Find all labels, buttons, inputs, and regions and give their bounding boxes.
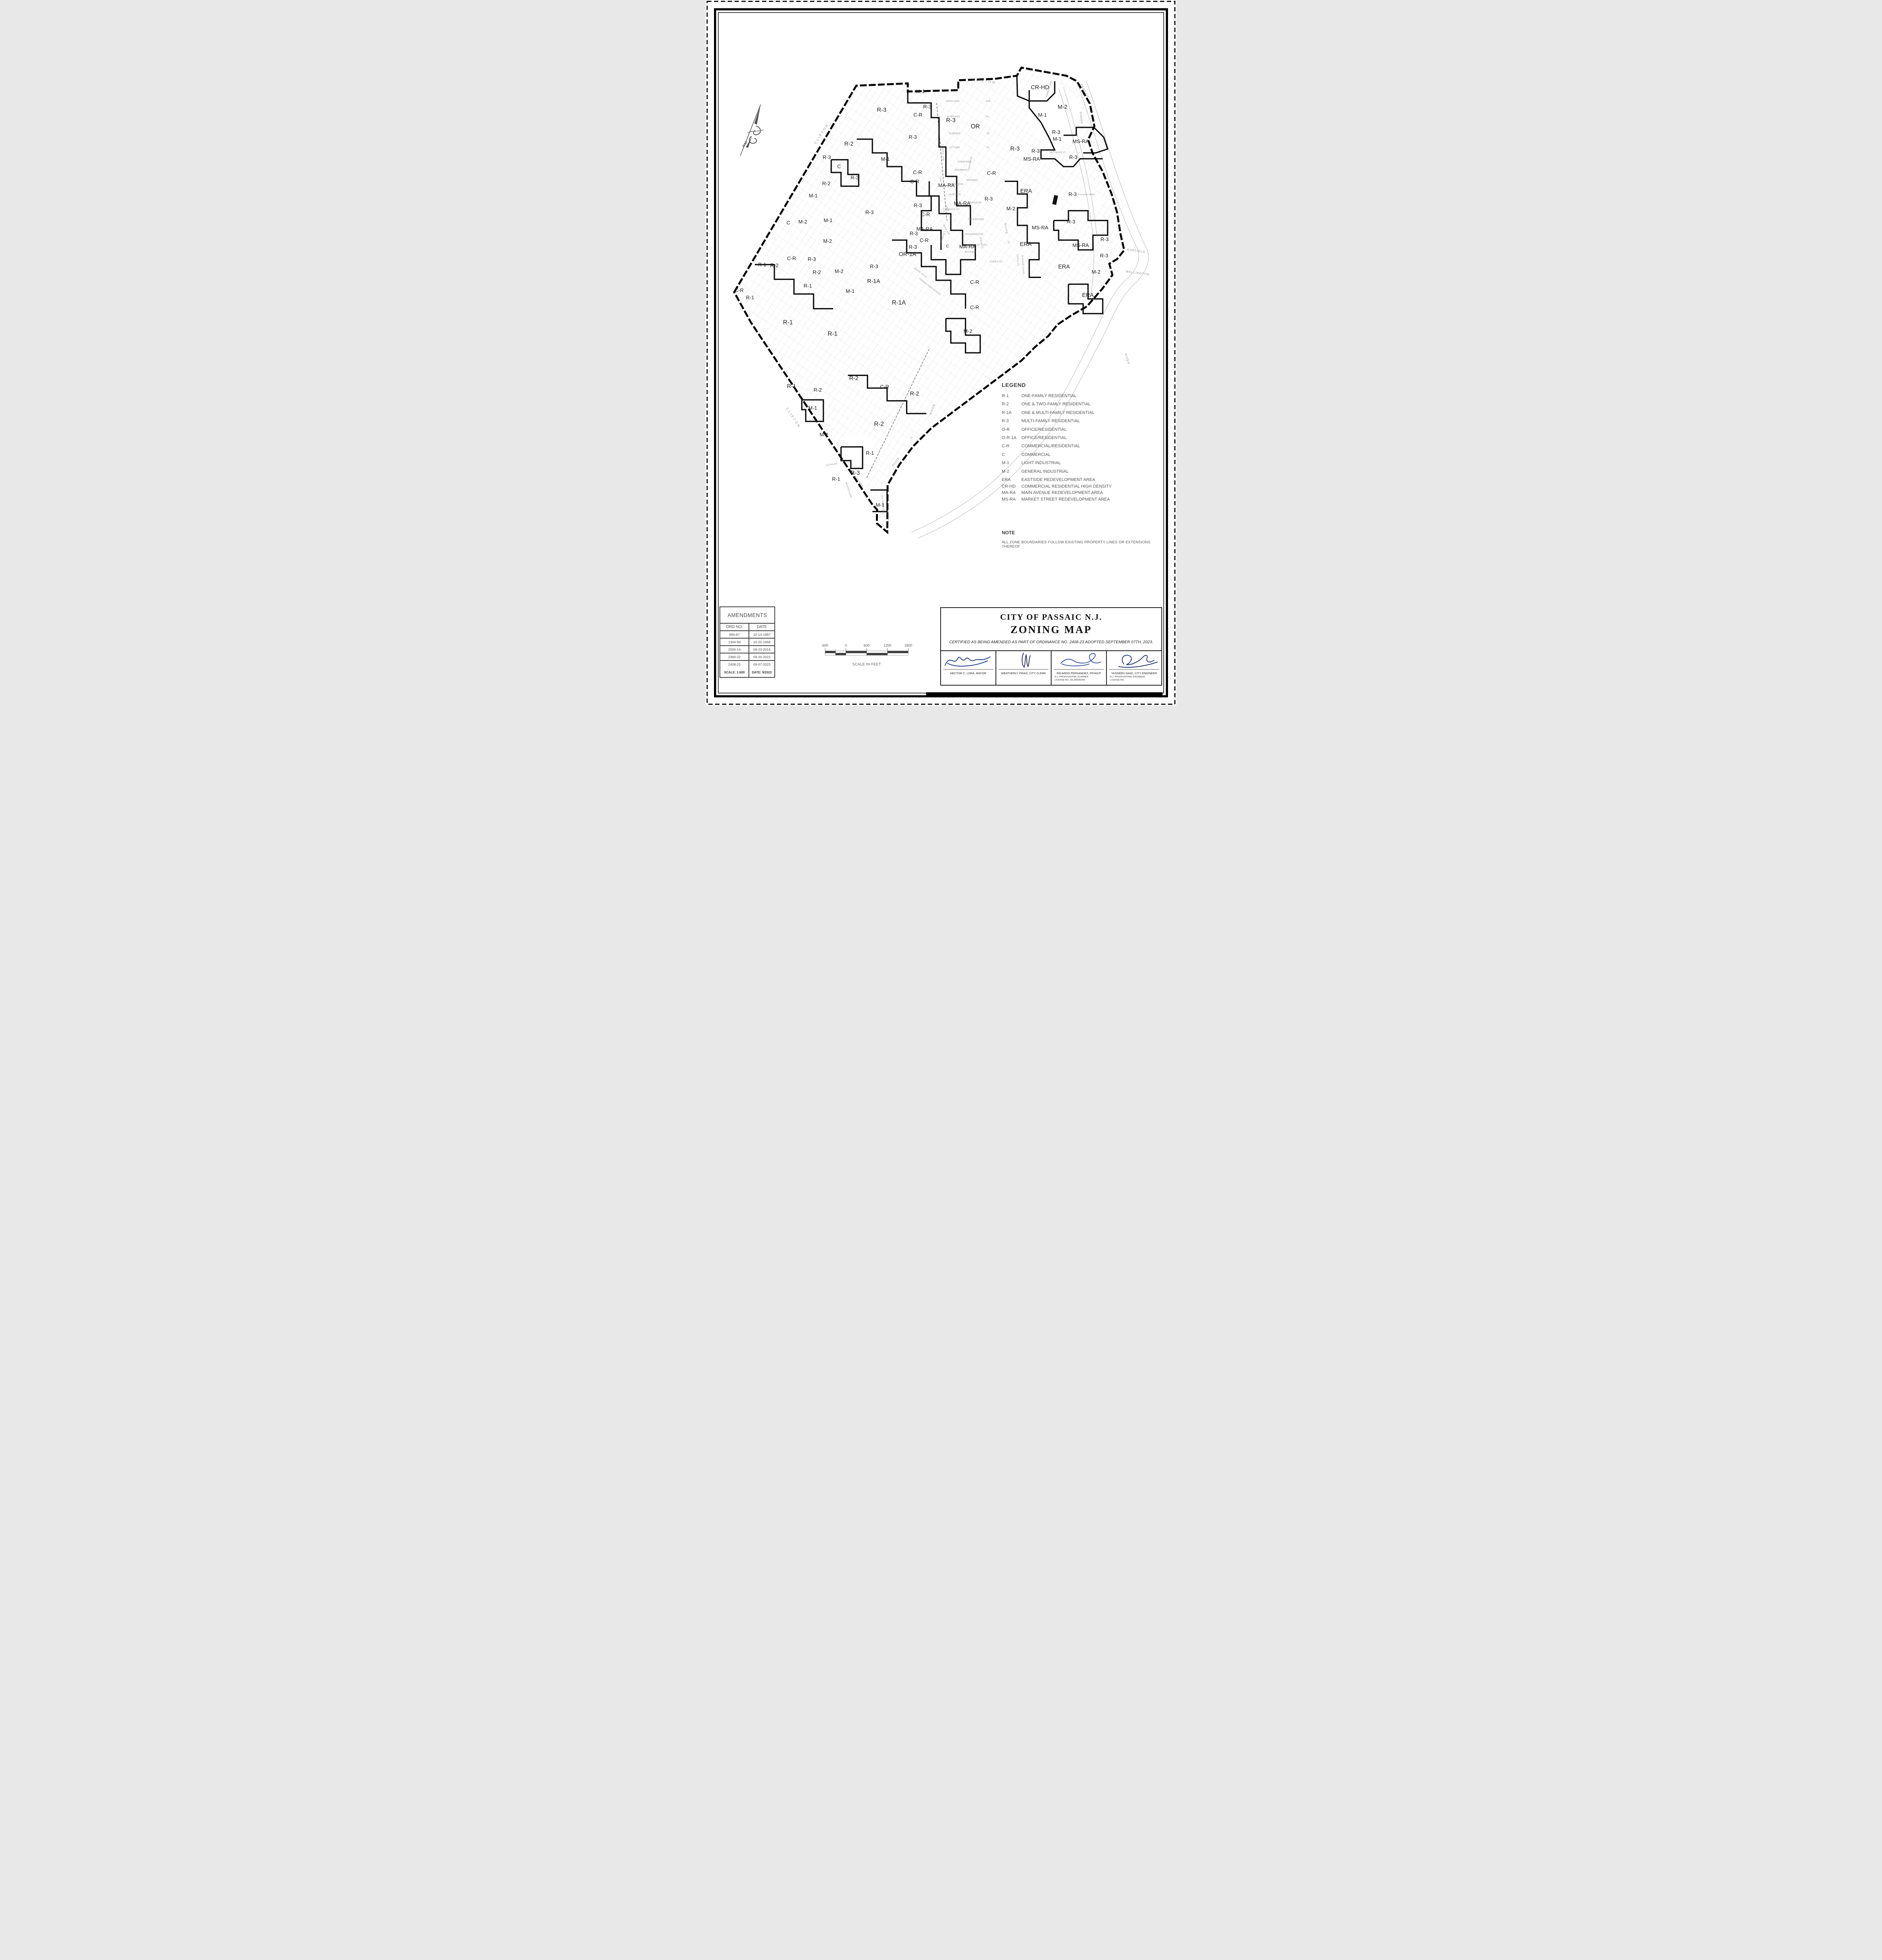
- note: NOTE ALL ZONE BOUNDARIES FOLLOW EXISTING…: [1002, 530, 1163, 549]
- street-label: GLENSIDE: [826, 463, 837, 466]
- zone-label: M-1: [846, 288, 854, 294]
- legend-item-code: O-R-1A: [1002, 436, 1021, 440]
- zone-label: C-R: [970, 305, 979, 310]
- zone-label: R-3: [870, 263, 878, 269]
- zone-label: MS-RA: [1072, 242, 1089, 248]
- zone-label: C-R: [987, 170, 996, 176]
- scale-bar: 600060012001800SCALE IN FEET: [822, 644, 912, 666]
- signatory-credential: N.J. PROFESSIONAL PLANNER: [1052, 676, 1106, 678]
- amendments-col-ord: ORD NO.: [720, 624, 749, 630]
- legend-item: R-2ONE & TWO-FAMLY RESIDENTIAL: [1002, 402, 1159, 407]
- title-block-header: CITY OF PASSAIC N.J. ZONING MAP CERTIFIE…: [940, 607, 1162, 651]
- signature-stroke: [1052, 651, 1106, 669]
- signature-rule: [1109, 669, 1159, 670]
- signatory-credential: N.J. PROFESSIONAL ENGINEER: [1107, 676, 1161, 678]
- amendment-date: 09-23-2014: [749, 646, 774, 653]
- legend-item-code: C: [1002, 452, 1021, 457]
- zone-label: M-1: [809, 192, 817, 198]
- zone-label: C-R: [735, 287, 744, 293]
- street-label: PASSAIC: [887, 511, 890, 524]
- zone-label: C-R: [913, 169, 922, 175]
- signature-cell: WEATHERLY FRIAS, CITY CLERK: [996, 651, 1052, 685]
- note-title: NOTE: [1002, 530, 1163, 535]
- zone-label: R-1: [866, 450, 874, 456]
- street-label: MONROE: [966, 179, 978, 181]
- zone-label: MA-RA: [938, 182, 955, 188]
- zone-label: M-1: [808, 405, 817, 411]
- zone-label: CR-HD: [1031, 85, 1049, 91]
- zone-label: R-3: [1067, 219, 1075, 225]
- legend-item-desc: COMMERCIAL: [1021, 452, 1159, 457]
- legend-item: M-1LIGHT INDUSTRIAL: [1002, 461, 1159, 465]
- signatory-name: YASSEEN SAAD, CITY ENGINEER: [1107, 671, 1161, 675]
- zone-label: R-1: [758, 261, 767, 267]
- legend-item-desc: ONE-FAMILY RESIDENTIAL: [1021, 394, 1159, 398]
- legend-item: O-R-1AOFFICE/RESIDENTIAL: [1002, 436, 1159, 440]
- amendment-date: 10-20-1994: [749, 639, 774, 645]
- amendment-ord: 2360-22: [720, 653, 749, 660]
- legend-item: R-3MULTI-FAMILY RESIDENTIAL: [1002, 419, 1159, 423]
- zone-label: C: [946, 244, 949, 249]
- zone-label: C-R: [914, 112, 923, 118]
- zone-label: R-1A: [867, 278, 880, 285]
- legend-item-code: R-1: [1002, 394, 1021, 398]
- zone-label: R-3: [1100, 252, 1108, 258]
- legend-title: LEGEND: [1002, 382, 1159, 388]
- amendment-ord: 2000-14: [720, 646, 749, 653]
- city-title: CITY OF PASSAIC N.J.: [941, 612, 1161, 622]
- zone-label: M-1: [916, 89, 925, 94]
- legend-item-code: CR-HD: [1002, 484, 1021, 489]
- signature-rule: [943, 669, 993, 670]
- legend-item-desc: LIGHT INDUSTRIAL: [1021, 461, 1159, 465]
- street-label: PULASKI PARK: [1078, 194, 1095, 196]
- note-text: ALL ZONE BOUNDARIES FOLLOW EXISTING PROP…: [1002, 540, 1163, 549]
- street-label: PL.: [986, 116, 990, 118]
- legend-item-code: O-R: [1002, 427, 1021, 432]
- zone-label: M-1: [1053, 136, 1061, 142]
- zone-label: R-3: [1101, 236, 1109, 242]
- amendment-row: 2408-2309-07-2023: [720, 661, 774, 668]
- legend-item: O-ROFFICE/RESIDENTIAL: [1002, 427, 1159, 432]
- zone-label: M-1: [820, 432, 828, 437]
- legend: LEGEND R-1ONE-FAMILY RESIDENTIALR-2ONE &…: [1002, 382, 1159, 503]
- zone-label: MA-RA: [916, 226, 933, 232]
- legend-item: CR-HDCOMMERCIAL RESIDENTIAL HIGH DENSITY: [1002, 484, 1159, 489]
- zone-label: OR: [971, 123, 980, 130]
- legend-item-desc: MAIN AVENUE REDEVELOPMENT AREA: [1021, 490, 1159, 495]
- zone-label: R-2: [844, 141, 853, 147]
- legend-item-code: ERA: [1002, 477, 1021, 482]
- street-label: RIVER: [1124, 353, 1130, 365]
- street-label: ERIE: [939, 176, 941, 182]
- amendment-row: 2360-2209-20-2022: [720, 653, 774, 661]
- zone-label: MA-RA: [954, 200, 970, 206]
- zone-label: M-2: [963, 328, 972, 334]
- zone-label: M-1: [1038, 112, 1047, 118]
- street-label: SHERMAN: [954, 169, 968, 172]
- signatory-name: RICARDO FERNANDEZ, PP/AICP: [1052, 671, 1106, 675]
- signature-rule: [999, 669, 1048, 670]
- legend-item-desc: ONE & TWO-FAMLY RESIDENTIAL: [1021, 402, 1159, 407]
- legend-item-desc: MARKET STREET REDEVELOPMENT AREA: [1021, 497, 1159, 502]
- legend-item-code: MA-RA: [1002, 490, 1021, 495]
- north-arrow: MAP: [740, 105, 764, 156]
- legend-item-code: R-1A: [1002, 410, 1021, 415]
- map-scale: SCALE: 1:600: [720, 668, 749, 677]
- legend-item-code: R-3: [1002, 419, 1021, 423]
- signature-cell: YASSEEN SAAD, CITY ENGINEERN.J. PROFESSI…: [1107, 651, 1161, 685]
- zone-label: R-3: [946, 117, 956, 123]
- zone-label: R-3: [1069, 154, 1077, 160]
- zone-label: C-R: [910, 179, 919, 185]
- street-label: ST.: [986, 147, 990, 149]
- zone-label: C-R: [787, 255, 796, 261]
- amendment-row: 990-8710-13-1987: [720, 631, 774, 639]
- certification-text: CERTIFIED AS BEING AMENDED AS PART OF OR…: [941, 640, 1161, 644]
- zone-label: M-1: [881, 156, 890, 162]
- zone-label: R-3: [823, 154, 831, 160]
- scale-bar-label: SCALE IN FEET: [852, 662, 881, 666]
- scale-bar-tick: 600: [822, 644, 828, 648]
- amendment-ord: 1304-94: [720, 639, 749, 645]
- amendment-date: 09-07-2023: [749, 661, 774, 668]
- signature-cell: HECTOR C. LORA, MAYOR: [941, 651, 996, 685]
- zone-label: C: [787, 220, 790, 225]
- zone-label: M-2: [823, 238, 832, 244]
- legend-item-code: R-2: [1002, 402, 1021, 407]
- legend-item-code: M-1: [1002, 461, 1021, 465]
- zone-label: M-2: [835, 269, 843, 274]
- street-label: PASSAIC: [965, 251, 976, 254]
- zone-label: R-1: [804, 283, 812, 289]
- zone-label: R-1A: [892, 299, 906, 306]
- zone-label: ERA: [1058, 264, 1070, 270]
- zone-label: MA-RA: [959, 243, 976, 249]
- zone-label: MS-RA: [1032, 225, 1048, 230]
- amendment-date: 09-20-2022: [749, 653, 774, 660]
- legend-item: MS-RAMARKET STREET REDEVELOPMENT AREA: [1002, 497, 1159, 502]
- legend-item: CCOMMERCIAL: [1002, 452, 1159, 457]
- signature-grid: HECTOR C. LORA, MAYORWEATHERLY FRIAS, CI…: [940, 651, 1162, 686]
- street-label: WASHINGTON: [965, 234, 983, 236]
- zone-label: R-3: [910, 230, 918, 236]
- legend-item-desc: GENERAL INDUSTRIAL: [1021, 469, 1159, 474]
- zone-label: R-1: [787, 383, 796, 390]
- zone-label: R-3: [851, 175, 859, 181]
- street-label: JACKSON: [948, 194, 961, 196]
- zone-label: OR-1A: [899, 251, 916, 258]
- amendments-title: AMENDMENTS: [720, 607, 774, 624]
- zone-label: R-2: [874, 421, 884, 428]
- street-label: AVE.: [986, 100, 991, 103]
- legend-item: MA-RAMAIN AVENUE REDEVELOPMENT AREA: [1002, 490, 1159, 495]
- amendments-footer-row: SCALE: 1:600 DATE: 9/2023: [720, 668, 774, 677]
- amendments-col-date: DATE: [749, 624, 774, 630]
- amendments-header-row: ORD NO. DATE: [720, 624, 774, 631]
- signature-rule: [1054, 669, 1104, 670]
- zone-label: R-3: [1068, 191, 1077, 197]
- street-label: R.R.: [942, 208, 945, 213]
- zone-label: C: [837, 163, 841, 169]
- legend-item-desc: OFFICE/RESIDENTIAL: [1021, 436, 1159, 440]
- zone-label: R-3: [909, 134, 917, 140]
- north-arrow-scroll: [754, 126, 761, 134]
- zone-label: R-2: [813, 269, 821, 275]
- legend-item: C-RCOMMERCIAL/RESIDENTIAL: [1002, 444, 1159, 448]
- zone-label: R-2: [910, 391, 919, 397]
- legend-items: R-1ONE-FAMILY RESIDENTIALR-2ONE & TWO-FA…: [1002, 394, 1159, 502]
- zone-label: R-3: [909, 244, 917, 250]
- street-label: HIGHLAND: [946, 100, 959, 103]
- signature-cell: RICARDO FERNANDEZ, PP/AICPN.J. PROFESSIO…: [1052, 651, 1107, 685]
- zone-label: R-2: [822, 181, 830, 187]
- zone-label: R-3: [877, 107, 887, 113]
- amendment-date: 10-13-1987: [749, 631, 774, 638]
- zone-label: C-R: [970, 279, 979, 285]
- legend-item-desc: ONE & MULTI-FAMILY RESIDENTIAL: [1021, 410, 1159, 415]
- zone-label: R-1: [746, 294, 754, 300]
- zone-label: ERA: [1020, 241, 1032, 248]
- scale-bar-tick: 1200: [883, 644, 891, 648]
- north-arrow-needle: [754, 105, 761, 125]
- zone-label: C-R: [919, 237, 928, 243]
- zone-label: C-R: [880, 384, 889, 390]
- street-label: MADISON: [969, 202, 982, 204]
- legend-item: R-1AONE & MULTI-FAMILY RESIDENTIAL: [1002, 410, 1159, 415]
- scale-bar-tick: 1800: [904, 644, 912, 648]
- signature-stroke: [941, 651, 995, 669]
- zone-label: MS-RA: [1072, 138, 1089, 144]
- signatory-credential: LICENSE NO. 33LJ00606200: [1052, 679, 1106, 681]
- title-block: CITY OF PASSAIC N.J. ZONING MAP CERTIFIE…: [940, 607, 1162, 693]
- signatory-name: HECTOR C. LORA, MAYOR: [941, 671, 995, 675]
- legend-item-desc: EASTSIDE REDEVELOPMENT AREA: [1021, 477, 1159, 482]
- amendment-row: 2000-1409-23-2014: [720, 646, 774, 653]
- legend-item: R-1ONE-FAMILY RESIDENTIAL: [1002, 394, 1159, 398]
- street-label: GARFIELD: [1127, 248, 1146, 254]
- map-date: DATE: 9/2023: [749, 668, 774, 677]
- street-label: 21: [1007, 241, 1010, 244]
- zone-label: M-2: [1058, 104, 1068, 111]
- zone-label: M-1: [824, 218, 832, 223]
- signature-stroke: [996, 651, 1051, 669]
- legend-item-desc: MULTI-FAMILY RESIDENTIAL: [1021, 419, 1159, 423]
- street-label: SUMMER: [949, 133, 961, 135]
- zone-label: M-1: [876, 502, 885, 508]
- legend-item-desc: COMMERCIAL/RESIDENTIAL: [1021, 444, 1159, 448]
- street-label: MATTIMORE ST.: [1050, 152, 1066, 154]
- zone-label: M-2: [798, 219, 807, 225]
- zone-label: R-3: [1010, 145, 1020, 152]
- zone-label: R-3: [808, 256, 816, 262]
- title-block-bottom-bar: [926, 692, 1163, 697]
- zone-label: R-2: [814, 387, 822, 393]
- street-label: HUGHES LAKE: [845, 482, 852, 498]
- zone-label: R-3: [851, 470, 860, 476]
- zone-label: ERA: [1082, 292, 1094, 299]
- zone-label: R-1: [828, 330, 837, 337]
- legend-item-code: M-2: [1002, 469, 1021, 474]
- street-label: CLIFTON: [785, 407, 801, 429]
- zone-label: R-3: [985, 196, 993, 201]
- page-title: ZONING MAP: [941, 624, 1161, 636]
- zone-label: R-2: [849, 375, 858, 381]
- map-sheet: CLIFTONCLIFTONCLIFTONGARFIELDWALLINGTONP…: [706, 0, 1176, 706]
- amendment-ord: 990-87: [720, 631, 749, 638]
- zone-label: R-3: [914, 203, 922, 209]
- legend-item-desc: COMMERCIAL RESIDENTIAL HIGH DENSITY: [1021, 484, 1159, 489]
- signatory-credential: LICENSE NO.: [1107, 679, 1161, 681]
- zoning-map-canvas: CLIFTONCLIFTONCLIFTONGARFIELDWALLINGTONP…: [706, 0, 1176, 706]
- amendments-table: AMENDMENTS ORD NO. DATE 990-8710-13-1987…: [719, 606, 775, 678]
- zone-label: M-2: [1006, 206, 1015, 212]
- zone-label: R-3: [923, 103, 932, 109]
- legend-item: ERAEASTSIDE REDEVELOPMENT AREA: [1002, 477, 1159, 482]
- signatory-name: WEATHERLY FRIAS, CITY CLERK: [996, 671, 1051, 675]
- amendment-row: 1304-9410-20-1994: [720, 639, 774, 646]
- scale-bar-tick: 600: [864, 644, 870, 648]
- legend-item-desc: OFFICE/RESIDENTIAL: [1021, 427, 1159, 432]
- street-label: ST.: [987, 133, 991, 135]
- zone-label: R-3: [865, 209, 874, 215]
- zone-label: C-R: [921, 212, 930, 218]
- zone-label: R-1: [783, 319, 793, 326]
- street-label: ASPEN ST.: [990, 261, 1003, 263]
- signature-stroke: [1107, 651, 1161, 669]
- zone-label: R-1: [832, 476, 840, 482]
- zone-label: ERA: [1020, 188, 1032, 194]
- street-label: WALLINGTON: [1125, 270, 1150, 276]
- amendment-ord: 2408-23: [720, 661, 749, 668]
- zone-label: R-3: [1052, 129, 1060, 135]
- street-label: AUTUMN: [949, 147, 960, 149]
- legend-item-code: MS-RA: [1002, 497, 1021, 502]
- zone-label: M-2: [1092, 269, 1100, 275]
- zone-label: MS-RA: [1023, 156, 1040, 162]
- scale-bar-tick: 0: [845, 644, 847, 648]
- zone-label: R-2: [770, 263, 779, 269]
- street-label: JEFFERSON: [968, 219, 984, 221]
- zone-label: R-3: [1032, 148, 1040, 154]
- legend-item-code: C-R: [1002, 444, 1021, 448]
- legend-item: M-2GENERAL INDUSTRIAL: [1002, 469, 1159, 474]
